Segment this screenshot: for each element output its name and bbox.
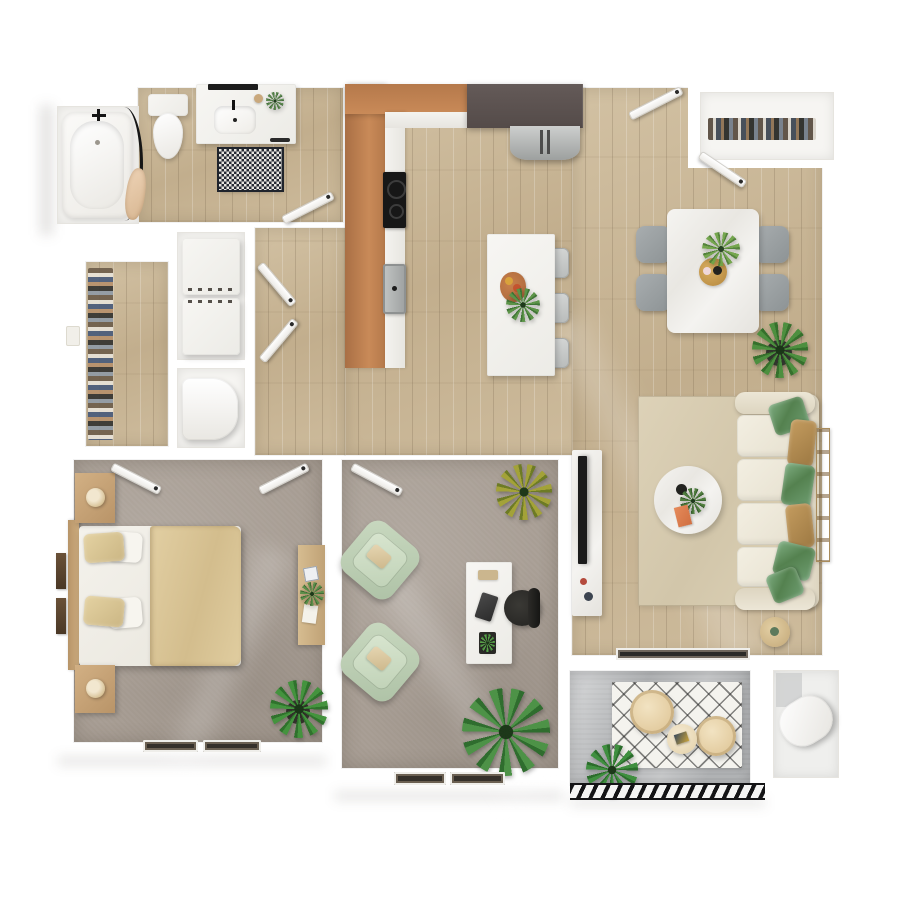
fruit bbox=[505, 277, 513, 285]
tv bbox=[578, 456, 587, 564]
wall-shadow bbox=[58, 757, 326, 765]
vanity-soap bbox=[254, 94, 263, 103]
cabinet-top-run bbox=[345, 84, 467, 114]
wall-art bbox=[56, 553, 66, 589]
desk-paper bbox=[302, 604, 318, 624]
desk-plant-sprig bbox=[300, 582, 324, 606]
office-window bbox=[450, 772, 505, 785]
washer bbox=[182, 238, 240, 295]
fridge-handles bbox=[540, 130, 543, 154]
bottle bbox=[713, 266, 722, 275]
desk-tray bbox=[478, 570, 498, 580]
dining-chair bbox=[754, 274, 789, 311]
washer-controls bbox=[188, 288, 234, 291]
hanging-clothes bbox=[88, 268, 113, 440]
wall-shadow bbox=[335, 792, 563, 800]
dryer bbox=[182, 298, 240, 355]
console-decor bbox=[580, 578, 587, 585]
sofa-pillow-green bbox=[780, 462, 816, 508]
coffee-table bbox=[654, 466, 722, 534]
bedroom-plant bbox=[270, 680, 328, 738]
side-table-decor bbox=[770, 627, 779, 636]
vanity-mirror bbox=[208, 84, 258, 90]
dining-chair bbox=[636, 274, 671, 311]
laptop bbox=[474, 592, 498, 622]
bed-headboard bbox=[68, 520, 79, 670]
sink-faucet-icon bbox=[232, 100, 235, 110]
office-window bbox=[394, 772, 446, 785]
hallway-floor bbox=[255, 228, 345, 455]
desk-frame bbox=[303, 566, 319, 582]
cabinet-left-run bbox=[345, 84, 385, 368]
bedroom-window bbox=[143, 740, 198, 752]
lounge-chair bbox=[696, 716, 736, 756]
sink-drain bbox=[233, 118, 237, 122]
sofa bbox=[735, 392, 819, 612]
wall-shadow bbox=[570, 799, 765, 806]
dryer-controls bbox=[188, 300, 234, 303]
refrigerator bbox=[510, 126, 580, 160]
office-chair-back bbox=[528, 588, 540, 628]
console-decor bbox=[584, 592, 593, 601]
coat-closet-clothes bbox=[708, 118, 816, 140]
floor-plan-canvas bbox=[0, 0, 900, 900]
dining-chair bbox=[636, 226, 671, 263]
dish bbox=[703, 267, 711, 275]
burner bbox=[389, 204, 404, 219]
large-plant bbox=[462, 688, 550, 776]
spiky-plant bbox=[496, 464, 552, 520]
sliding-glass-door bbox=[616, 648, 750, 660]
burner bbox=[387, 180, 406, 199]
towel-bar bbox=[270, 138, 290, 142]
table-plant-sprig bbox=[702, 232, 740, 266]
kitchen-sink bbox=[383, 264, 406, 314]
vanity-plant bbox=[266, 92, 284, 110]
lounge-chair bbox=[630, 690, 674, 734]
balcony-table bbox=[667, 724, 697, 754]
table-lamp bbox=[86, 679, 105, 698]
fridge-handles bbox=[547, 130, 550, 154]
bed-pillow-tan bbox=[83, 532, 125, 564]
wall-shadow bbox=[40, 105, 53, 235]
dining-chair bbox=[754, 226, 789, 263]
cooktop bbox=[383, 172, 406, 228]
cabinet-dark-upper bbox=[467, 84, 583, 128]
balcony-railing bbox=[570, 783, 765, 800]
dining-plant bbox=[752, 322, 808, 378]
desk-plant-box bbox=[479, 632, 496, 654]
tub-faucet-icon bbox=[97, 109, 100, 121]
bedroom-window bbox=[203, 740, 261, 752]
table-lamp bbox=[86, 488, 105, 507]
bath-rug bbox=[219, 149, 282, 190]
sofa-pillow-tan bbox=[787, 419, 818, 467]
desk-plant bbox=[480, 634, 495, 652]
water-heater bbox=[182, 378, 238, 440]
tray-book bbox=[674, 731, 689, 745]
bed-duvet bbox=[150, 526, 241, 666]
wall-art bbox=[56, 598, 66, 634]
island-plant bbox=[506, 288, 540, 322]
side-table bbox=[760, 617, 790, 647]
ladder-shelf bbox=[816, 428, 830, 562]
sink-faucet-icon bbox=[392, 286, 397, 291]
counter-left bbox=[385, 112, 405, 368]
bed-pillow-tan bbox=[83, 595, 125, 627]
bathtub-drain bbox=[95, 140, 100, 145]
light-switch bbox=[66, 326, 80, 346]
counter-top bbox=[385, 112, 467, 128]
